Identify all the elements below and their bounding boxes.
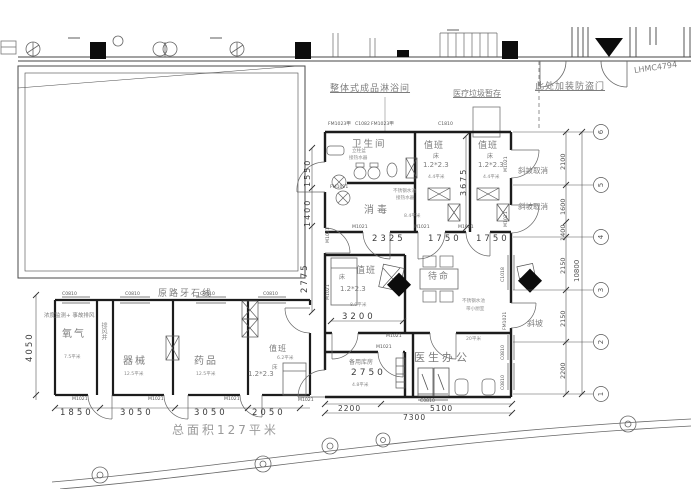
room-label-instruments: 器械 [123, 357, 147, 367]
area-spare-storage: 4.8平米 [352, 384, 369, 389]
note-ss-sink-2: 不锈钢水池 [462, 300, 485, 305]
wall-tick-marks [68, 30, 459, 38]
note-pedestal-basin: 立柱盆 [352, 150, 366, 155]
parcel-outline [18, 66, 305, 278]
room-label-medicine: 药品 [194, 357, 218, 367]
dim-2150-a: 2150 [560, 257, 567, 274]
door-code: M1021 [352, 226, 368, 231]
room-label-doctor-office: 医生办公 [414, 352, 470, 363]
dim-2150-b: 2150 [560, 310, 567, 327]
floor-plan-drawing [0, 0, 691, 489]
window-code: C0810 [62, 293, 77, 298]
cad-floor-plan: 整体式成品淋浴间 医疗垃圾暂存 此处加装防盗门 LHMC4794 卫生间 立柱盆… [0, 0, 691, 489]
door-code: M1021 [298, 399, 314, 404]
area-duty-left: 6.2平米 [277, 357, 294, 362]
dim-2100: 2100 [560, 153, 567, 170]
vent-symbol-icon [26, 36, 244, 57]
dim-5100: 5100 [430, 405, 453, 413]
window-code: C0810 [125, 293, 140, 298]
note-kitchenette: 带小厨室 [466, 308, 484, 313]
door-code: M1021 [376, 346, 392, 351]
dim-2750: 2750 [351, 369, 386, 378]
door-code: M1021 [148, 398, 164, 403]
dimension-lines [36, 132, 593, 413]
toilet-icon [354, 163, 397, 179]
room-label-duty-center: 值班 [356, 267, 376, 276]
bed-size-1: 1.2*2.3 [423, 162, 449, 169]
note-connect-heater: 接热水器 [349, 157, 367, 162]
dim-3200: 3200 [342, 313, 376, 322]
note-slope: 斜坡 [527, 320, 543, 328]
dim-1550: 1550 [304, 159, 312, 187]
room-label-duty-1: 值班 [424, 142, 444, 151]
dim-2325: 2325 [372, 235, 406, 244]
note-shower-unit: 整体式成品淋浴间 [330, 85, 410, 94]
dim-2200-b: 2200 [560, 362, 567, 379]
door-code: M1021 [505, 156, 510, 172]
dim-2050: 2050 [252, 409, 286, 418]
area-duty-2: 4.4平米 [483, 176, 500, 181]
door-code: M1021 [458, 226, 474, 231]
bed-size-4: 1.2*2.3 [248, 371, 274, 378]
dim-3050-b: 3050 [194, 409, 228, 418]
note-slope-cancel-2: 斜坡取消 [518, 203, 548, 211]
door-code: FM1021 [504, 312, 509, 330]
room-label-duty-left: 值班 [269, 345, 287, 353]
corner-fixture-icon [1, 41, 16, 54]
bed-size-3: 1.2*2.3 [340, 286, 366, 293]
dim-4050: 4050 [26, 332, 35, 362]
door-code: M1021 [72, 398, 88, 403]
door-code: FM1023甲 [328, 123, 351, 128]
desk-icon [418, 368, 449, 396]
dim-2775: 2775 [301, 263, 310, 293]
area-duty-1: 4.4平米 [428, 176, 445, 181]
entrance-triangle-icon [595, 38, 623, 57]
dim-1750-a: 1750 [428, 235, 462, 244]
window-code: C1810 [438, 123, 453, 128]
window-code: C1082 [355, 123, 370, 128]
grid-bubble-5: 5 [597, 178, 605, 192]
grid-bubble-4: 4 [597, 230, 605, 244]
dim-1400-b: 1400 [560, 224, 567, 241]
note-slope-cancel-1: 斜坡取消 [518, 167, 548, 175]
window-code: C0810 [263, 293, 278, 298]
grid-bubble-1: 1 [597, 387, 605, 401]
upper-wall-stubs [572, 27, 690, 57]
railing-segment [333, 33, 497, 57]
column-icon [90, 41, 518, 59]
room-label-exhaust-shaft: 排风井 [100, 322, 106, 340]
window-code: C0810 [200, 293, 215, 298]
window-code: C0810 [502, 345, 507, 360]
bed-label-2: 床 [487, 154, 493, 160]
dim-10800: 10800 [574, 260, 581, 282]
grid-bubble-6: 6 [597, 125, 605, 139]
area-duty-center: 8.9平米 [350, 304, 367, 309]
room-label-standby: 待命 [428, 273, 450, 282]
door-code: FM1021 [330, 186, 348, 191]
door-code: M1021 [327, 227, 332, 243]
door-code: M1021 [224, 398, 240, 403]
road-curve [52, 419, 691, 489]
dim-1750-b: 1750 [476, 235, 510, 244]
sink-icon [327, 146, 350, 205]
note-monitoring: 浓度监测+ 事故排风 [44, 314, 94, 320]
note-connect-heater-2: 接热水器 [396, 197, 414, 202]
door-code: M1021 [505, 211, 510, 227]
exterior-wall-band [18, 57, 691, 61]
dim-1400: 1400 [304, 199, 312, 227]
door-code: FM1023甲 [371, 123, 394, 128]
bed-label-1: 床 [433, 154, 439, 160]
room-label-spare-storage: 备用库房 [349, 360, 373, 366]
dim-3675: 3675 [460, 168, 468, 196]
area-doctor-office: 20平米 [466, 338, 481, 343]
room-label-duty-2: 值班 [478, 142, 498, 151]
door-code: M1021 [327, 284, 332, 300]
dim-3050-a: 3050 [120, 409, 154, 418]
note-ss-sink-1: 不锈钢水池 [393, 190, 416, 195]
window-code: C0810 [502, 375, 507, 390]
door-swing-icon [88, 150, 539, 419]
area-medicine: 12.5平米 [196, 373, 215, 378]
bed-icon [283, 258, 357, 395]
door-code: M1021 [414, 226, 430, 231]
dim-1600: 1600 [560, 198, 567, 215]
note-medical-waste: 医疗垃圾暂存 [453, 90, 501, 98]
dim-1850: 1850 [60, 409, 94, 418]
area-instruments: 12.5平米 [124, 373, 143, 378]
grid-bubble [594, 125, 609, 402]
dim-2200: 2200 [338, 405, 361, 413]
room-label-oxygen: 氧气 [62, 330, 86, 340]
grid-bubble-3: 3 [597, 283, 605, 297]
window-code: C1018 [502, 267, 507, 282]
bed-size-2: 1.2*2.3 [478, 162, 504, 169]
note-security-door: 此处加装防盗门 [535, 83, 605, 92]
bed-label-3: 床 [339, 275, 345, 281]
total-area-label: 总面积127平米 [172, 424, 279, 436]
area-disinfection: 8.4平米 [404, 215, 421, 220]
area-oxygen: 7.5平米 [64, 356, 81, 361]
room-label-disinfection: 消毒 [364, 206, 390, 216]
grid-bubble-2: 2 [597, 335, 605, 349]
dim-7300: 7300 [403, 414, 426, 422]
door-code: M1021 [386, 335, 402, 340]
shelf-icon [396, 358, 405, 388]
equipment-diamond-icon [379, 263, 542, 296]
